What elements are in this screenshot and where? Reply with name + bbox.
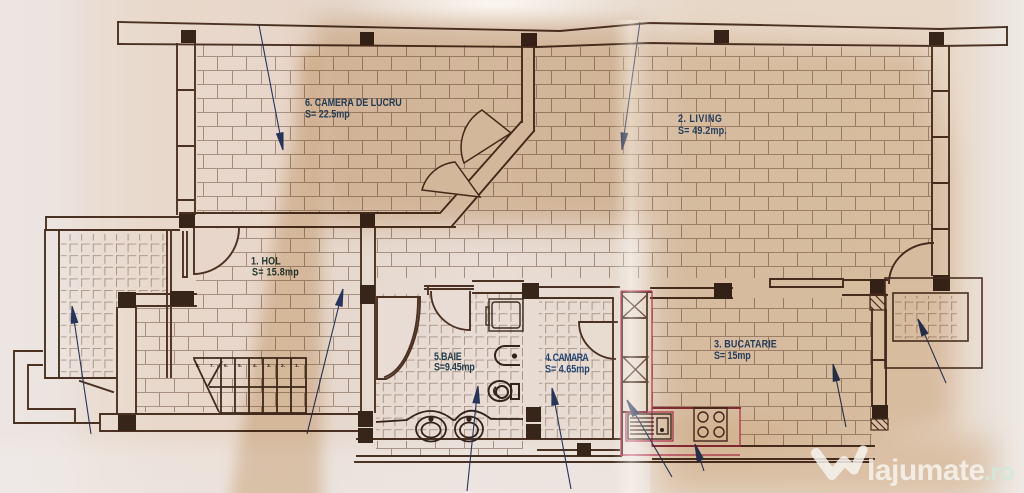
svg-text:.ro: .ro (984, 459, 1015, 486)
svg-text:lajumate: lajumate (867, 454, 985, 487)
